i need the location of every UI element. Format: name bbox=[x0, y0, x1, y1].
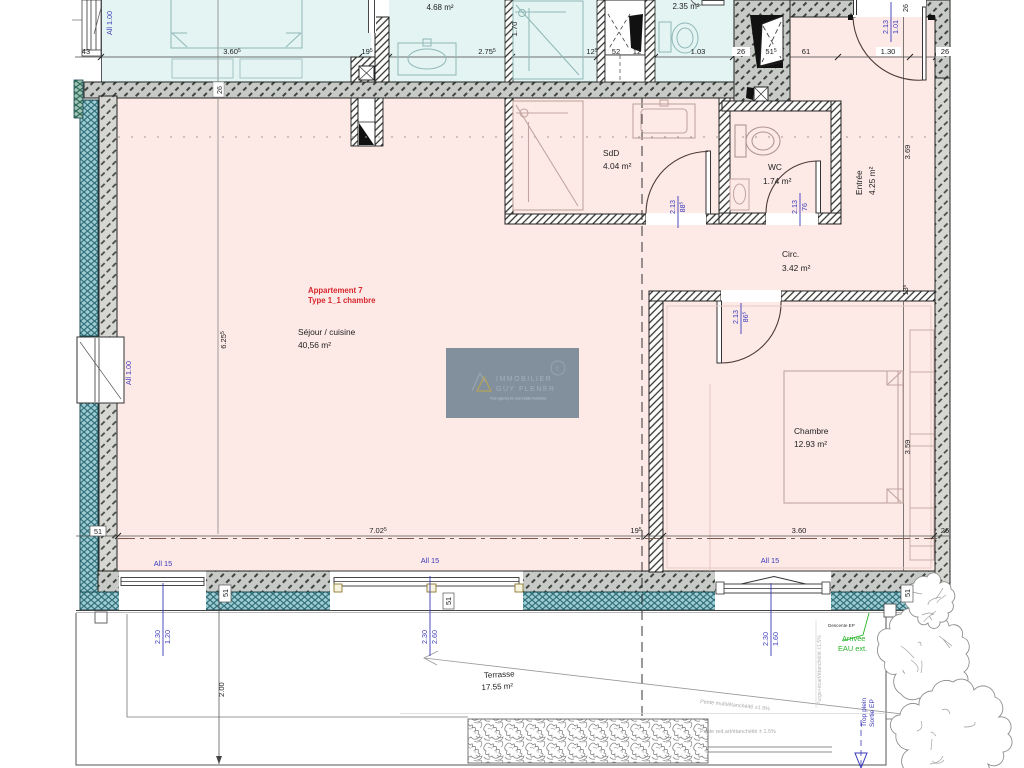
svg-text:3.69: 3.69 bbox=[903, 145, 912, 160]
svg-text:Trop plein: Trop plein bbox=[861, 698, 868, 727]
svg-text:EAU ext.: EAU ext. bbox=[838, 644, 867, 653]
svg-text:2.13: 2.13 bbox=[790, 200, 799, 214]
svg-text:76: 76 bbox=[800, 203, 809, 211]
svg-text:GUY FLENER: GUY FLENER bbox=[496, 386, 556, 393]
svg-text:61: 61 bbox=[802, 47, 810, 56]
svg-text:Entrée: Entrée bbox=[854, 170, 864, 195]
svg-text:1.70: 1.70 bbox=[510, 22, 519, 37]
svg-text:Circ.: Circ. bbox=[782, 249, 799, 259]
svg-text:2.30: 2.30 bbox=[153, 630, 162, 644]
svg-text:All 1.00: All 1.00 bbox=[105, 11, 114, 35]
svg-text:12: 12 bbox=[633, 47, 641, 56]
svg-text:2.13: 2.13 bbox=[731, 310, 740, 324]
svg-text:Type 1_1 chambre: Type 1_1 chambre bbox=[308, 296, 376, 305]
svg-text:2.60: 2.60 bbox=[430, 630, 439, 644]
svg-text:1.20: 1.20 bbox=[163, 630, 172, 644]
svg-text:2.35 m²: 2.35 m² bbox=[672, 2, 699, 11]
svg-text:2.13: 2.13 bbox=[881, 20, 890, 34]
svg-text:51: 51 bbox=[94, 527, 102, 536]
svg-text:2.13: 2.13 bbox=[668, 200, 677, 214]
svg-text:26: 26 bbox=[737, 47, 745, 56]
svg-text:1.74 m²: 1.74 m² bbox=[763, 176, 792, 186]
svg-text:3.59: 3.59 bbox=[903, 440, 912, 455]
svg-text:All 15: All 15 bbox=[154, 559, 173, 568]
svg-text:2.30: 2.30 bbox=[420, 630, 429, 644]
svg-text:Purge+écart/étanchéité ±1.5%: Purge+écart/étanchéité ±1.5% bbox=[817, 635, 823, 705]
svg-text:Terrasse: Terrasse bbox=[484, 669, 516, 680]
svg-text:Descente EP: Descente EP bbox=[828, 623, 855, 628]
svg-text:52: 52 bbox=[612, 47, 620, 56]
svg-text:3.60: 3.60 bbox=[792, 526, 807, 535]
svg-text:WC: WC bbox=[768, 162, 782, 172]
svg-text:26: 26 bbox=[901, 4, 910, 12]
svg-text:All 15: All 15 bbox=[761, 556, 780, 565]
svg-text:26: 26 bbox=[941, 47, 949, 56]
svg-text:Séjour / cuisine: Séjour / cuisine bbox=[298, 327, 356, 337]
svg-text:Your agency for real estate bu: Your agency for real estate business bbox=[490, 397, 547, 401]
svg-text:4.25 m²: 4.25 m² bbox=[867, 166, 877, 195]
svg-text:All 15: All 15 bbox=[421, 556, 440, 565]
svg-text:1.01: 1.01 bbox=[891, 20, 900, 34]
svg-text:4.04 m²: 4.04 m² bbox=[603, 161, 632, 171]
svg-text:Appartement 7: Appartement 7 bbox=[308, 286, 363, 295]
svg-text:IMMOBILIER: IMMOBILIER bbox=[496, 376, 552, 383]
svg-text:Chambre: Chambre bbox=[794, 426, 829, 436]
svg-text:Pente red.art/étanchéité ± 1.5: Pente red.art/étanchéité ± 1.5% bbox=[700, 729, 776, 735]
svg-text:All 1.00: All 1.00 bbox=[124, 361, 133, 385]
svg-text:26: 26 bbox=[215, 86, 224, 94]
svg-text:12.93 m²: 12.93 m² bbox=[794, 439, 827, 449]
svg-text:17.55 m²: 17.55 m² bbox=[481, 681, 513, 692]
svg-text:26: 26 bbox=[941, 526, 949, 535]
svg-text:2.00: 2.00 bbox=[217, 682, 226, 697]
svg-text:51: 51 bbox=[221, 589, 230, 597]
svg-text:1.03: 1.03 bbox=[691, 47, 706, 56]
svg-text:SdD: SdD bbox=[603, 148, 619, 158]
svg-text:3.42 m²: 3.42 m² bbox=[782, 263, 811, 273]
svg-text:2.30: 2.30 bbox=[761, 632, 770, 646]
svg-text:Sortie EP: Sortie EP bbox=[869, 699, 876, 727]
svg-text:43: 43 bbox=[82, 47, 90, 56]
svg-text:40,56 m²: 40,56 m² bbox=[298, 340, 331, 350]
svg-text:1.30: 1.30 bbox=[881, 47, 896, 56]
svg-text:51: 51 bbox=[903, 589, 912, 597]
svg-text:51: 51 bbox=[444, 597, 453, 605]
svg-text:4.68 m²: 4.68 m² bbox=[426, 3, 453, 12]
svg-text:f: f bbox=[556, 367, 558, 374]
svg-text:1.60: 1.60 bbox=[771, 632, 780, 646]
